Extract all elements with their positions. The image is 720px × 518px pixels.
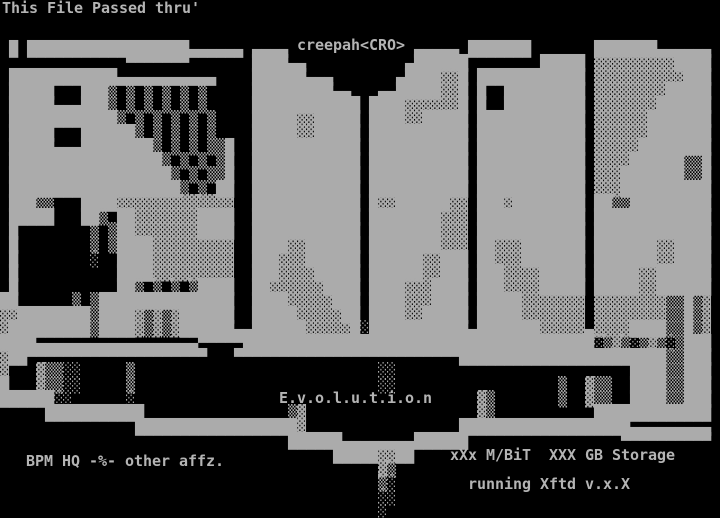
affiliations-line: BPM HQ -%- other affz. [26,454,224,468]
release-title: E.v.o.l.u.t.i.o.n [279,391,432,405]
software-version-line: running Xftd v.x.X [468,477,630,491]
banner-text: This File Passed thru' [2,1,200,15]
ansi-art: █ ██████████████████▄▄▄▄▄▄ ▄▄▄▄ ▄▄▄▄▄ ██… [0,0,720,518]
terminal-screen: █ ██████████████████▄▄▄▄▄▄ ▄▄▄▄ ▄▄▄▄▄ ██… [0,0,720,518]
artist-name: creepah<CRO> [297,38,405,52]
site-stats-line: xXx M/BiT XXX GB Storage [450,448,675,462]
